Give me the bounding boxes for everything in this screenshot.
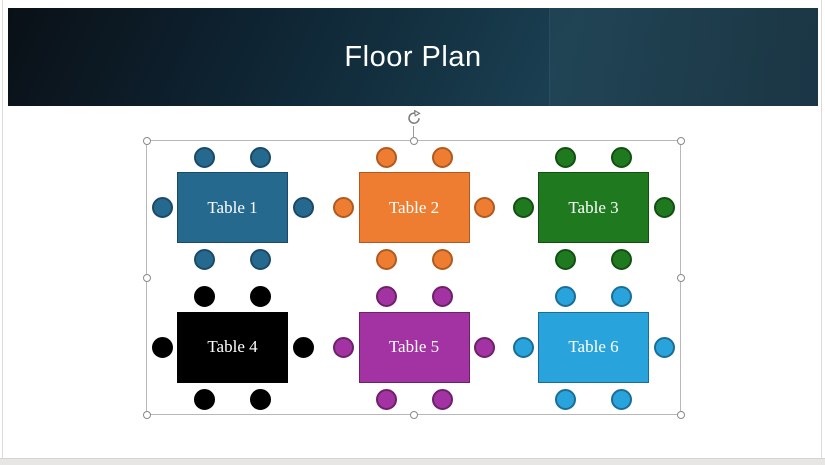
chair-shape[interactable]: [293, 197, 314, 218]
table-shape[interactable]: Table 1: [177, 172, 288, 243]
chair-shape[interactable]: [555, 249, 576, 270]
chair-shape[interactable]: [611, 286, 632, 307]
chair-shape[interactable]: [250, 286, 271, 307]
table-label: Table 3: [568, 198, 618, 218]
chair-shape[interactable]: [152, 197, 173, 218]
rotate-handle-stem: [413, 126, 414, 137]
chair-shape[interactable]: [376, 286, 397, 307]
table-group[interactable]: Table 6: [513, 285, 675, 409]
chair-shape[interactable]: [513, 197, 534, 218]
table-label: Table 2: [389, 198, 439, 218]
resize-handle-middle-left[interactable]: [143, 274, 151, 282]
chair-shape[interactable]: [555, 286, 576, 307]
table-label: Table 4: [207, 337, 257, 357]
chair-shape[interactable]: [513, 337, 534, 358]
chair-shape[interactable]: [333, 337, 354, 358]
chair-shape[interactable]: [250, 249, 271, 270]
chair-shape[interactable]: [555, 147, 576, 168]
chair-shape[interactable]: [293, 337, 314, 358]
table-group[interactable]: Table 5: [333, 285, 495, 409]
table-label: Table 5: [389, 337, 439, 357]
chair-shape[interactable]: [474, 197, 495, 218]
window-right-border: [821, 0, 822, 458]
chair-shape[interactable]: [474, 337, 495, 358]
chair-shape[interactable]: [152, 337, 173, 358]
table-group[interactable]: Table 4: [152, 285, 314, 409]
chair-shape[interactable]: [333, 197, 354, 218]
resize-handle-bottom-right[interactable]: [677, 411, 685, 419]
chair-shape[interactable]: [194, 389, 215, 410]
window-bottom-strip: [0, 458, 825, 465]
chair-shape[interactable]: [376, 249, 397, 270]
table-group[interactable]: Table 1: [152, 146, 314, 270]
rotate-handle[interactable]: [406, 110, 422, 126]
chair-shape[interactable]: [555, 389, 576, 410]
table-group[interactable]: Table 2: [333, 146, 495, 270]
table-shape[interactable]: Table 2: [359, 172, 470, 243]
chair-shape[interactable]: [611, 389, 632, 410]
resize-handle-bottom-center[interactable]: [410, 411, 418, 419]
chair-shape[interactable]: [432, 389, 453, 410]
resize-handle-top-left[interactable]: [143, 137, 151, 145]
table-shape[interactable]: Table 5: [359, 312, 470, 383]
chair-shape[interactable]: [654, 197, 675, 218]
chair-shape[interactable]: [376, 389, 397, 410]
table-shape[interactable]: Table 6: [538, 312, 649, 383]
chair-shape[interactable]: [611, 249, 632, 270]
table-group[interactable]: Table 3: [513, 146, 675, 270]
resize-handle-top-center[interactable]: [410, 137, 418, 145]
chair-shape[interactable]: [432, 249, 453, 270]
resize-handle-middle-right[interactable]: [677, 274, 685, 282]
table-label: Table 6: [568, 337, 618, 357]
slide-title[interactable]: Floor Plan: [344, 41, 481, 74]
chair-shape[interactable]: [611, 147, 632, 168]
resize-handle-bottom-left[interactable]: [143, 411, 151, 419]
chair-shape[interactable]: [432, 147, 453, 168]
chair-shape[interactable]: [194, 286, 215, 307]
rotate-icon: [406, 110, 422, 126]
table-label: Table 1: [207, 198, 257, 218]
window-left-border: [2, 0, 3, 458]
resize-handle-top-right[interactable]: [677, 137, 685, 145]
chair-shape[interactable]: [250, 389, 271, 410]
chair-shape[interactable]: [376, 147, 397, 168]
table-shape[interactable]: Table 4: [177, 312, 288, 383]
chair-shape[interactable]: [432, 286, 453, 307]
chair-shape[interactable]: [654, 337, 675, 358]
table-shape[interactable]: Table 3: [538, 172, 649, 243]
chair-shape[interactable]: [250, 147, 271, 168]
chair-shape[interactable]: [194, 147, 215, 168]
chair-shape[interactable]: [194, 249, 215, 270]
application-window: Floor Plan Table 1 Table 2 Table 3: [0, 0, 825, 465]
slide-title-band[interactable]: Floor Plan: [8, 8, 818, 106]
